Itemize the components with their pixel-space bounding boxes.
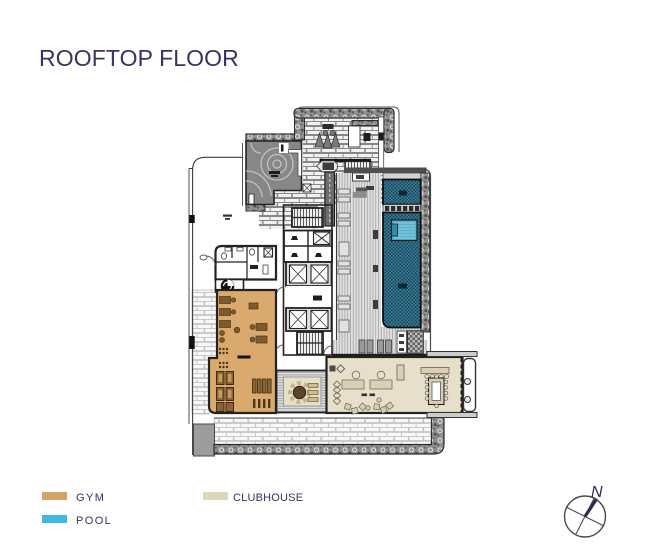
- svg-text:CLUBHOUSE: CLUBHOUSE: [233, 492, 303, 504]
- svg-text:GYM: GYM: [76, 492, 105, 504]
- svg-text:N: N: [591, 484, 603, 501]
- svg-text:ROOFTOP FLOOR: ROOFTOP FLOOR: [39, 45, 239, 71]
- svg-text:POOL: POOL: [76, 515, 112, 527]
